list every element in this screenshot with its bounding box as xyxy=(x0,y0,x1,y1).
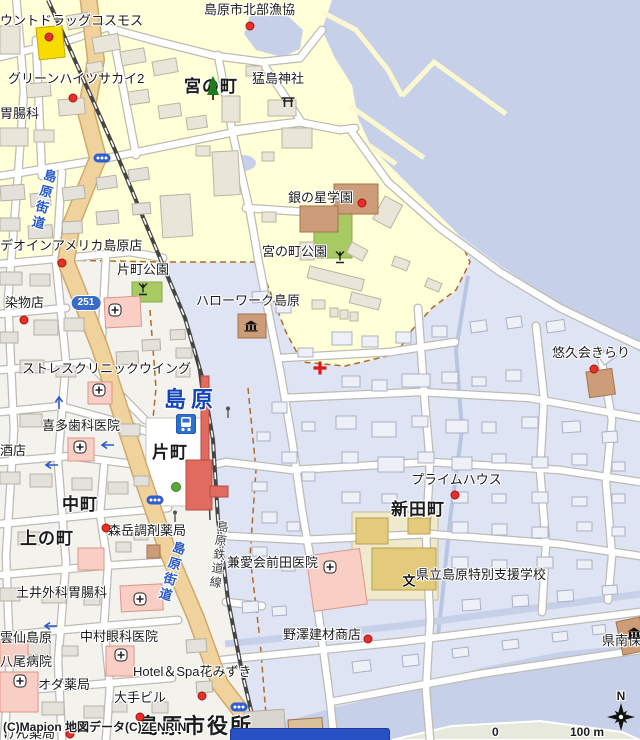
poi-dot-marker[interactable] xyxy=(57,258,68,269)
poi-label: 胃腸科 xyxy=(0,107,39,121)
poi-dot-marker[interactable] xyxy=(197,691,208,702)
poi-label: 兼愛会前田医院 xyxy=(227,556,318,570)
poi-dot-marker[interactable] xyxy=(589,364,600,375)
town-name-label: 中町 xyxy=(62,496,98,514)
poi-label: ハローワーク島原 xyxy=(196,294,300,308)
poi-dot-marker[interactable] xyxy=(363,634,374,645)
poi-label: 土井外科胃腸科 xyxy=(16,586,107,600)
poi-label: ウントドラッグコスモス xyxy=(0,14,143,28)
red-cross-icon xyxy=(313,361,328,376)
school-icon-text: 文 xyxy=(402,574,415,589)
poi-dot-marker[interactable] xyxy=(450,490,461,501)
hospital-icon xyxy=(13,674,27,688)
hospital-icon xyxy=(133,592,147,606)
tree-icon xyxy=(206,76,220,100)
government-office-icon xyxy=(628,628,640,639)
town-name-label: 片町 xyxy=(152,444,188,462)
station-name-label: 島原 xyxy=(164,388,218,411)
poi-label: 中村眼科医院 xyxy=(80,630,158,644)
poi-label: 宮の町公園 xyxy=(262,245,327,259)
poi-label: 猛島神社 xyxy=(252,72,304,86)
poi-label: プライムハウス xyxy=(411,473,502,487)
hospital-icon xyxy=(108,303,122,317)
government-office-icon xyxy=(245,321,258,332)
poi-label: 片町公園 xyxy=(117,263,169,277)
tree-dot-icon xyxy=(171,482,182,493)
traffic-light-icon xyxy=(147,496,164,505)
poi-label: 森岳調剤薬局 xyxy=(108,524,186,538)
partial-banner xyxy=(230,728,390,740)
hospital-icon xyxy=(114,648,128,662)
pole-icon xyxy=(225,406,231,418)
hospital-icon xyxy=(323,560,337,574)
traffic-light-icon xyxy=(231,703,248,712)
poi-label: デオインアメリカ島原店 xyxy=(0,239,142,253)
school-icon: 文 xyxy=(402,575,415,588)
town-name-label: 上の町 xyxy=(20,530,74,548)
scale-zero: 0 xyxy=(492,726,499,739)
poi-label: 染物店 xyxy=(5,296,44,310)
traffic-light-icon xyxy=(94,154,111,163)
pole-icon xyxy=(172,510,178,522)
shrine-torii-icon xyxy=(281,96,296,108)
poi-dot-marker[interactable] xyxy=(357,198,368,209)
map-attribution: (C)Mapion 地図データ(C)ZENRIN xyxy=(3,721,186,734)
route-shield: 251 xyxy=(71,295,102,311)
compass-north-label: N xyxy=(606,690,636,703)
poi-label: 酒店 xyxy=(0,444,26,458)
poi-dot-marker[interactable] xyxy=(101,523,112,534)
poi-dot-marker[interactable] xyxy=(19,315,30,326)
park-fountain-icon xyxy=(137,283,149,296)
poi-label: 県立島原特別支援学校 xyxy=(416,568,546,582)
poi-dot-marker[interactable] xyxy=(44,32,55,43)
poi-label: 悠久会きらり xyxy=(552,346,630,360)
poi-label: 島原市北部漁協 xyxy=(204,3,295,17)
poi-label: 大手ビル xyxy=(114,691,166,705)
poi-dot-marker[interactable] xyxy=(68,93,79,104)
compass-rose: N xyxy=(606,690,636,736)
one-way-arrow-icon xyxy=(55,394,64,410)
compass-icon xyxy=(607,703,635,731)
poi-dot-marker[interactable] xyxy=(245,21,256,32)
hospital-icon xyxy=(92,383,106,397)
scale-distance: 100 m xyxy=(570,726,604,739)
town-name-label: 新田町 xyxy=(391,501,445,519)
poi-label: オダ薬局 xyxy=(38,678,90,692)
poi-label: 八尾病院 xyxy=(0,655,52,669)
poi-label: 喜多歯科医院 xyxy=(42,419,120,433)
park-fountain-icon xyxy=(334,251,346,264)
route-shield-text: 251 xyxy=(78,297,95,308)
poi-label: グリーンハイツサカイ2 xyxy=(8,72,144,86)
map-viewport[interactable]: ウントドラッグコスモスグリーンハイツサカイ2胃腸科島原市北部漁協宮の町猛島神社銀… xyxy=(0,0,640,740)
poi-label: 雲仙島原 xyxy=(0,631,52,645)
drugstore-building xyxy=(36,25,65,60)
poi-label: 野澤建材商店 xyxy=(283,628,361,642)
hospital-icon xyxy=(73,440,87,454)
train-station-icon xyxy=(176,414,196,434)
one-way-arrow-icon xyxy=(43,461,59,470)
one-way-arrow-icon xyxy=(99,441,115,450)
poi-label: ストレスクリニックウイング xyxy=(22,362,191,376)
poi-label: Hotel＆Spa花みずき xyxy=(133,665,251,679)
poi-label: 銀の星学園 xyxy=(288,191,353,205)
one-way-arrow-icon xyxy=(42,622,58,631)
